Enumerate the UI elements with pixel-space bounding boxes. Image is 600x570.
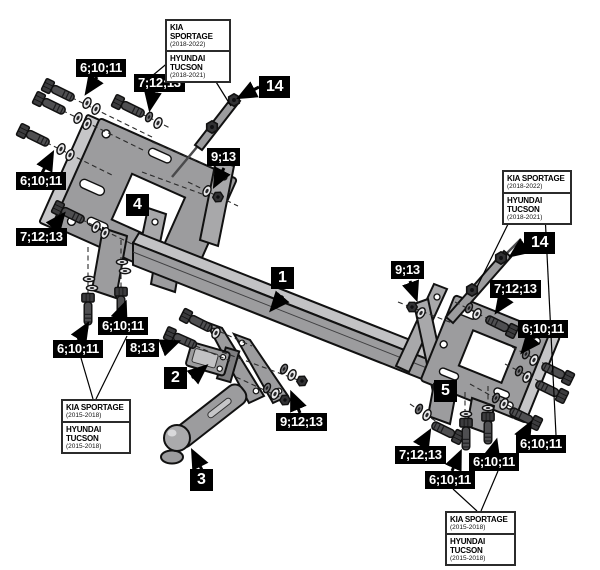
callout-6-10-11-center-upper: 6;10;11 <box>98 317 148 335</box>
callout-3: 3 <box>190 469 213 491</box>
vehicle-years: (2015-2018) <box>66 412 126 420</box>
towball <box>164 425 190 451</box>
callout-6-10-11-br-right: 6;10;11 <box>516 435 566 453</box>
vehicle-model: KIA SPORTAGE <box>450 515 511 524</box>
vehicle-years: (2018-2021) <box>170 72 226 80</box>
nut-icon <box>295 374 308 388</box>
vehicle-years: (2015-2018) <box>450 524 511 532</box>
washer-icon <box>90 102 101 115</box>
bolt-icon <box>111 94 146 120</box>
vehicle-model: HYUNDAI TUCSON <box>66 425 126 443</box>
vehicle-years: (2018-2021) <box>507 214 567 222</box>
nut-icon <box>207 121 218 133</box>
callout-6-10-11-right: 6;10;11 <box>518 320 568 338</box>
vehicle-years: (2018-2022) <box>170 41 226 49</box>
washer-icon <box>81 96 92 109</box>
vehicle-row: HYUNDAI TUCSON (2015-2018) <box>447 533 514 564</box>
crossbar-part-1 <box>133 233 433 381</box>
washer-icon <box>55 142 66 155</box>
bolt-icon <box>82 293 94 324</box>
vehicle-box-bottom-left: KIA SPORTAGE (2015-2018) HYUNDAI TUCSON … <box>61 399 131 454</box>
spring-washer-icon <box>279 363 289 375</box>
towball-highlight <box>168 430 177 437</box>
callout-6-10-11-br-mid: 6;10;11 <box>469 453 519 471</box>
vehicle-row: KIA SPORTAGE (2015-2018) <box>63 401 129 421</box>
flat-washer-icon <box>83 276 94 281</box>
callout-5: 5 <box>434 380 457 402</box>
callout-4: 4 <box>126 194 149 216</box>
bolt-icon <box>460 418 472 449</box>
vehicle-model: KIA SPORTAGE <box>66 403 126 412</box>
callout-9-13-right: 9;13 <box>391 261 424 279</box>
vehicle-box-top: KIA SPORTAGE (2018-2022) HYUNDAI TUCSON … <box>165 19 231 83</box>
vehicle-row: KIA SPORTAGE (2015-2018) <box>447 513 514 533</box>
bolt-icon <box>16 123 51 149</box>
callout-6-10-11-br-left: 6;10;11 <box>425 471 475 489</box>
vehicle-row: KIA SPORTAGE (2018-2022) <box>167 21 229 50</box>
bolt-icon <box>179 308 214 335</box>
spring-washer-icon <box>414 403 424 415</box>
callout-9-13-center: 9;13 <box>207 148 240 166</box>
vehicle-box-bottom-right: KIA SPORTAGE (2015-2018) HYUNDAI TUCSON … <box>445 511 516 566</box>
callout-6-10-11-top-left: 6;10;11 <box>76 59 126 77</box>
crossbar-front-face <box>133 243 427 381</box>
callout-7-12-13-right: 7;12;13 <box>490 280 541 298</box>
flat-washer-icon <box>86 285 97 290</box>
flat-washer-icon <box>460 411 471 416</box>
towbar-exploded-diagram: 6;10;11 7;12;13 14 6;10;11 4 7;12;13 9;1… <box>0 0 600 570</box>
vehicle-model: HYUNDAI TUCSON <box>450 537 511 555</box>
callout-8-13: 8;13 <box>126 339 159 357</box>
callout-6-10-11-left: 6;10;11 <box>16 172 66 190</box>
vehicle-years: (2015-2018) <box>66 443 126 451</box>
vehicle-years: (2015-2018) <box>450 555 511 563</box>
callout-9-12-13: 9;12;13 <box>276 413 327 431</box>
washer-icon <box>72 111 83 124</box>
vehicle-model: HYUNDAI TUCSON <box>170 54 226 72</box>
vehicle-row: HYUNDAI TUCSON (2018-2021) <box>504 192 570 223</box>
callout-14-right: 14 <box>524 232 555 254</box>
vehicle-row: KIA SPORTAGE (2018-2022) <box>504 172 570 192</box>
tab-hole <box>152 219 158 225</box>
callout-1: 1 <box>271 267 294 289</box>
vehicle-model: KIA SPORTAGE <box>507 174 567 183</box>
towball-collar <box>161 451 183 464</box>
bolt-icon <box>163 326 198 351</box>
vehicle-model: HYUNDAI TUCSON <box>507 196 567 214</box>
flat-washer-icon <box>116 259 127 264</box>
callout-2: 2 <box>164 367 187 389</box>
fork-hole <box>253 388 259 394</box>
vehicle-row: HYUNDAI TUCSON (2018-2021) <box>167 50 229 81</box>
vehicle-model: KIA SPORTAGE <box>170 23 226 41</box>
vehicle-box-right: KIA SPORTAGE (2018-2022) HYUNDAI TUCSON … <box>502 170 572 225</box>
callout-6-10-11-center-lower: 6;10;11 <box>53 340 103 358</box>
vehicle-row: HYUNDAI TUCSON (2015-2018) <box>63 421 129 452</box>
spring-washer-icon <box>144 111 154 123</box>
washer-icon <box>152 116 163 129</box>
callout-14-left: 14 <box>259 76 290 98</box>
callout-7-12-13-left: 7;12;13 <box>16 228 67 246</box>
tab-hole <box>434 294 440 300</box>
part2-hole <box>217 365 223 371</box>
vehicle-years: (2018-2022) <box>507 183 567 191</box>
towball-arm-part-3 <box>161 381 250 464</box>
nut-icon <box>496 252 507 264</box>
flat-washer-icon <box>119 268 130 273</box>
flat-washer-icon <box>482 405 493 410</box>
nut-icon <box>467 284 478 296</box>
callout-7-12-13-bottom-right: 7;12;13 <box>395 446 446 464</box>
bolt-icon <box>482 412 494 443</box>
